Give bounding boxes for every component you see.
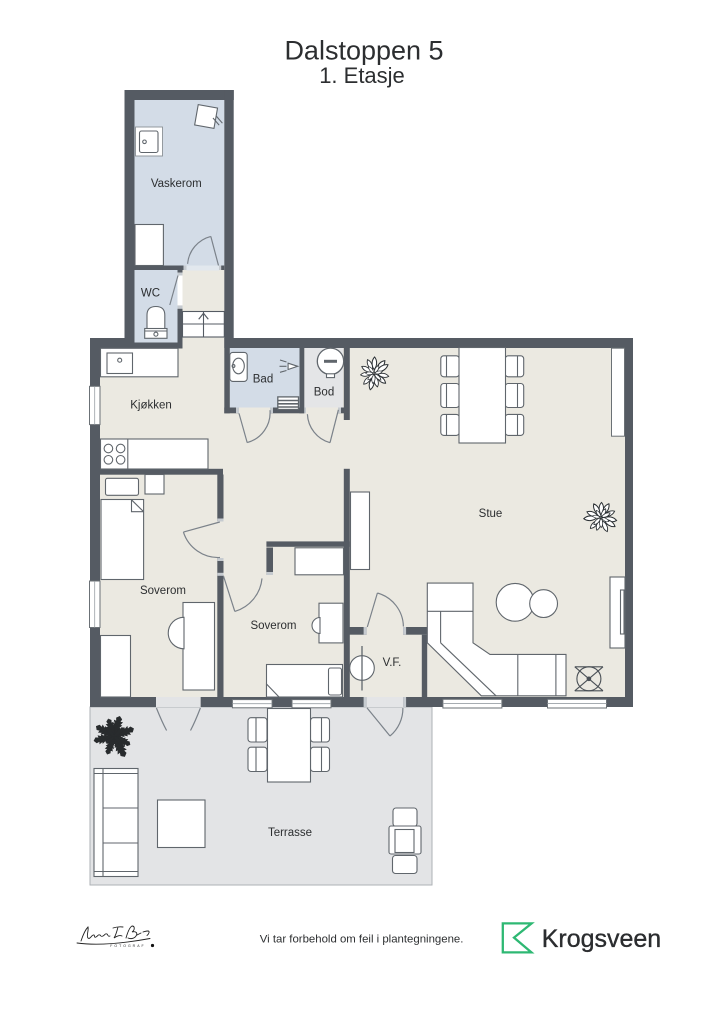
svg-text:Bod: Bod bbox=[314, 386, 334, 398]
svg-text:Vi tar forbehold om feil i pla: Vi tar forbehold om feil i plantegningen… bbox=[260, 934, 464, 946]
svg-text:WC: WC bbox=[141, 287, 160, 299]
svg-text:Kjøkken: Kjøkken bbox=[130, 399, 172, 411]
svg-text:1. Etasje: 1. Etasje bbox=[319, 63, 405, 88]
svg-text:Soverom: Soverom bbox=[140, 585, 186, 597]
svg-text:FOTOGRAF: FOTOGRAF bbox=[110, 944, 145, 948]
svg-text:Stue: Stue bbox=[479, 508, 503, 520]
svg-text:V.F.: V.F. bbox=[383, 657, 402, 669]
svg-text:Bad: Bad bbox=[253, 373, 273, 385]
svg-text:Vaskerom: Vaskerom bbox=[151, 178, 202, 190]
svg-text:Dalstoppen 5: Dalstoppen 5 bbox=[284, 36, 443, 66]
svg-text:Terrasse: Terrasse bbox=[268, 827, 312, 839]
svg-text:Krogsveen: Krogsveen bbox=[542, 925, 662, 953]
svg-text:Soverom: Soverom bbox=[250, 620, 296, 632]
